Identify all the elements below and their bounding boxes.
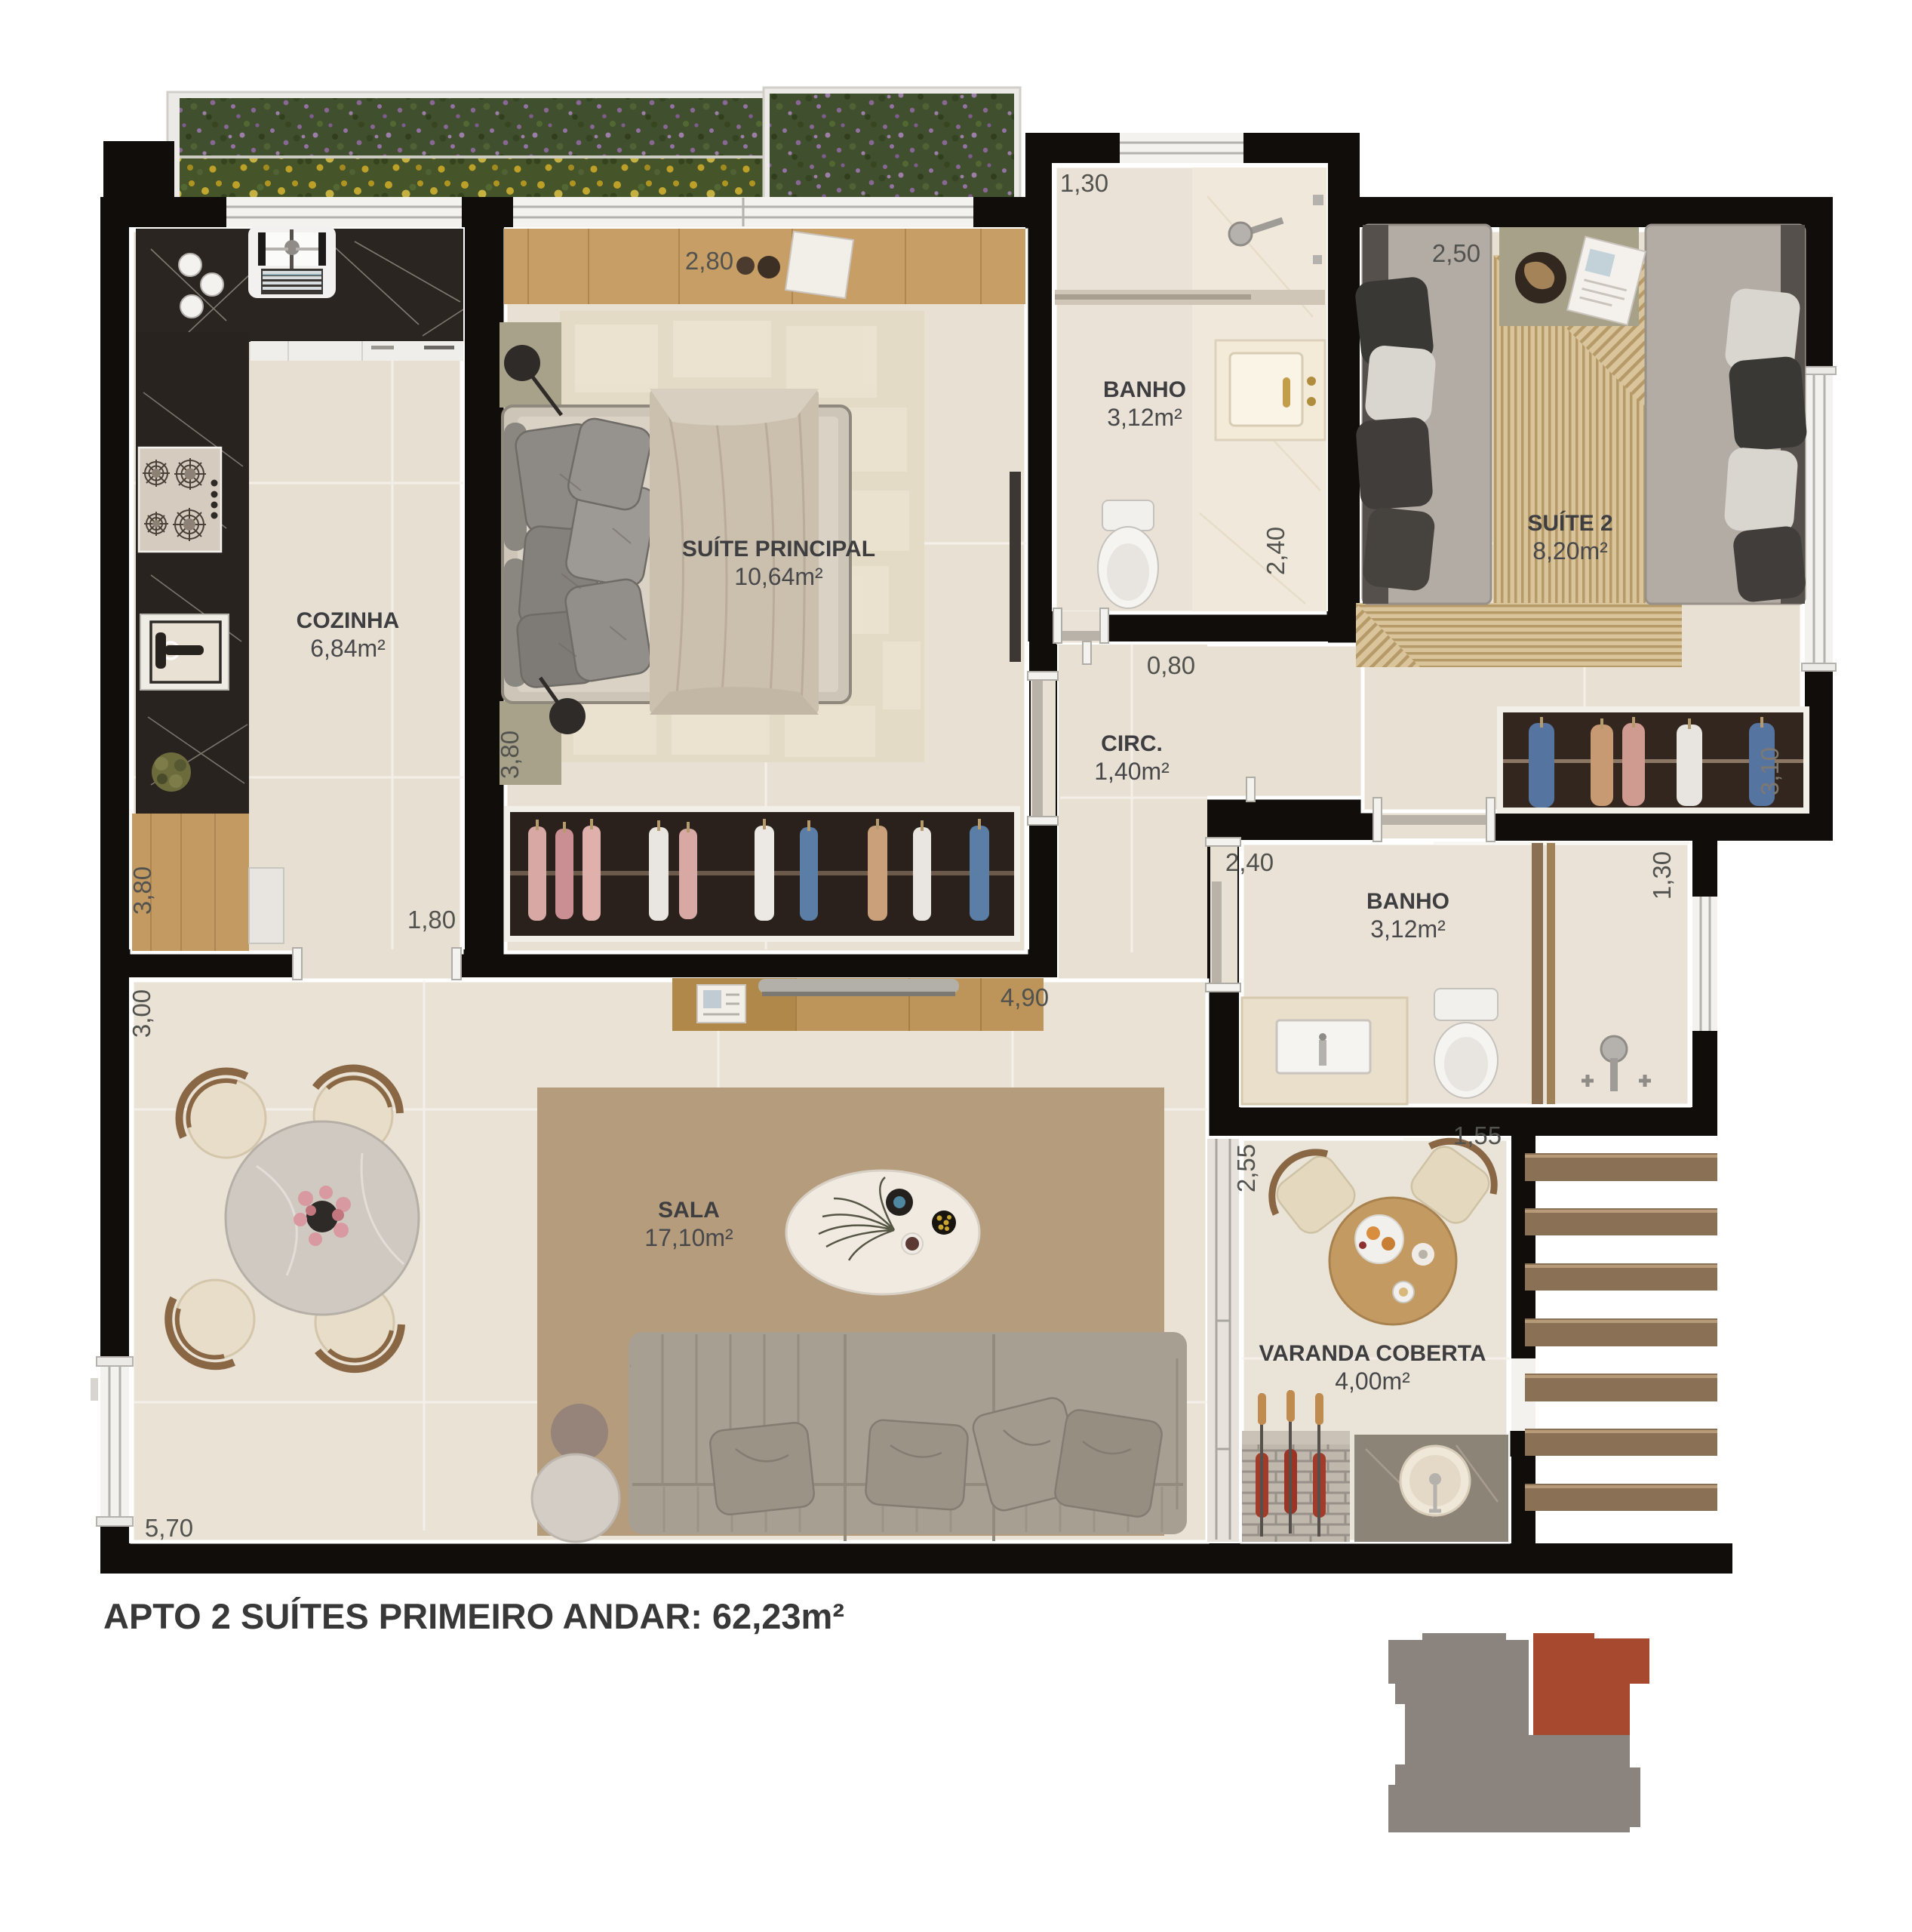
svg-text:1,55: 1,55: [1453, 1121, 1502, 1149]
svg-text:10,64m²: 10,64m²: [734, 563, 823, 590]
svg-text:1,80: 1,80: [407, 906, 456, 934]
svg-text:VARANDA COBERTA: VARANDA COBERTA: [1259, 1341, 1486, 1366]
svg-text:2,40: 2,40: [1225, 848, 1274, 876]
svg-text:2,55: 2,55: [1232, 1144, 1260, 1192]
svg-text:4,90: 4,90: [1001, 983, 1049, 1011]
svg-text:3,12m²: 3,12m²: [1370, 915, 1446, 943]
svg-text:6,84m²: 6,84m²: [310, 635, 386, 662]
svg-text:CIRC.: CIRC.: [1101, 731, 1163, 756]
svg-text:APTO 2 SUÍTES PRIMEIRO ANDAR:: APTO 2 SUÍTES PRIMEIRO ANDAR: 62,23m²: [103, 1596, 844, 1636]
svg-text:BANHO: BANHO: [1103, 377, 1186, 402]
svg-text:3,80: 3,80: [128, 866, 156, 915]
svg-text:SUÍTE PRINCIPAL: SUÍTE PRINCIPAL: [682, 536, 875, 561]
svg-text:3,12m²: 3,12m²: [1107, 404, 1182, 431]
svg-text:8,20m²: 8,20m²: [1532, 537, 1608, 565]
svg-text:4,00m²: 4,00m²: [1335, 1367, 1410, 1395]
svg-text:SALA: SALA: [658, 1198, 720, 1223]
svg-text:5,70: 5,70: [145, 1514, 193, 1542]
svg-text:COZINHA: COZINHA: [297, 608, 400, 633]
svg-text:3,80: 3,80: [496, 731, 524, 779]
svg-text:1,30: 1,30: [1648, 851, 1676, 900]
svg-text:2,80: 2,80: [685, 247, 733, 275]
svg-text:3,10: 3,10: [1756, 747, 1784, 795]
svg-text:17,10m²: 17,10m²: [644, 1224, 733, 1251]
svg-text:2,40: 2,40: [1262, 527, 1290, 575]
svg-text:SUÍTE 2: SUÍTE 2: [1527, 510, 1612, 536]
svg-text:0,80: 0,80: [1147, 651, 1195, 679]
svg-text:2,50: 2,50: [1432, 239, 1480, 267]
svg-text:BANHO: BANHO: [1366, 889, 1449, 914]
svg-text:1,40m²: 1,40m²: [1094, 758, 1170, 785]
svg-text:3,00: 3,00: [128, 989, 155, 1038]
svg-text:1,30: 1,30: [1060, 169, 1108, 197]
